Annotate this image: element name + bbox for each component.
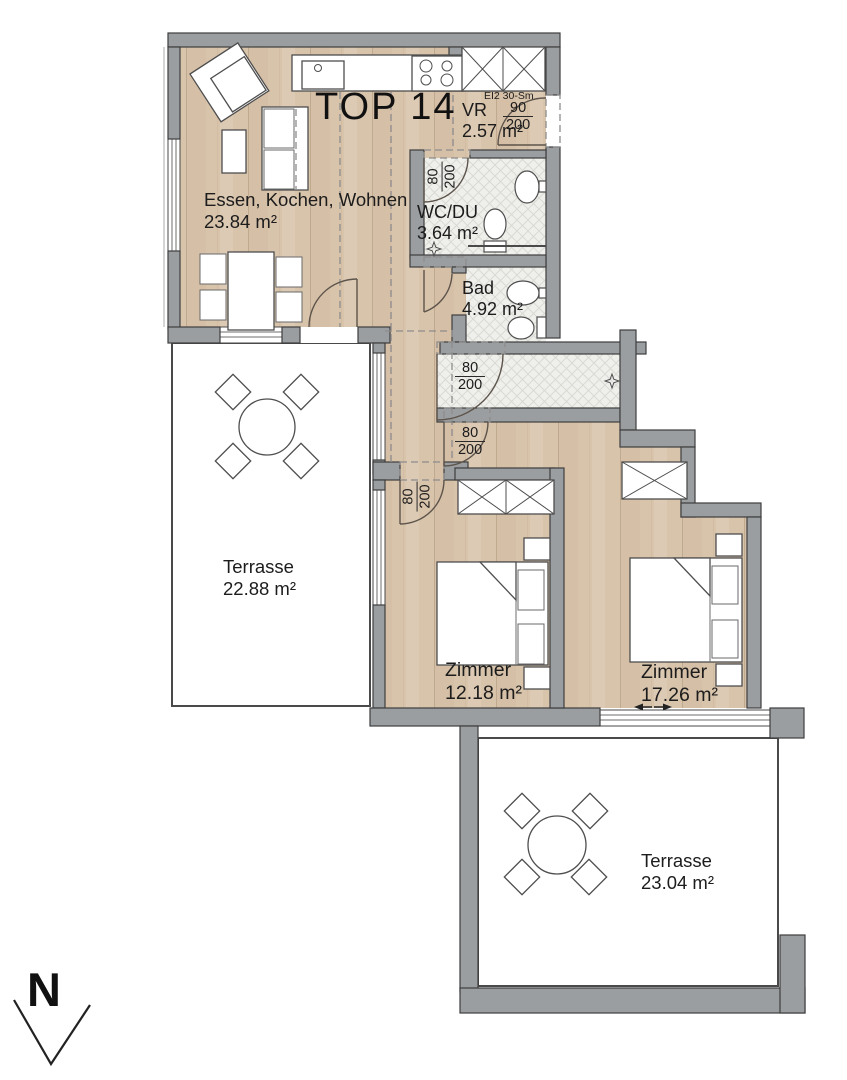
chair-icon — [283, 374, 318, 409]
door-size-label: 80 200 — [455, 360, 485, 393]
round-table-icon — [528, 816, 586, 874]
floor-plan: TOP 14 Essen, Kochen, Wohnen 23.84 m² VR… — [0, 0, 847, 1080]
north-label: N — [27, 962, 61, 1017]
kitchen-sink-icon — [302, 61, 344, 89]
toilet-icon — [484, 209, 506, 239]
room-label-bedroom-large: Zimmer 17.26 m² — [641, 661, 718, 707]
room-label-bedroom-small: Zimmer 12.18 m² — [445, 659, 522, 705]
chair-icon — [504, 859, 539, 894]
wardrobe-icon — [622, 462, 687, 499]
door-size-label: 80 200 — [401, 481, 434, 511]
door-size-label: 80 200 — [455, 425, 485, 458]
unit-title: TOP 14 — [315, 86, 457, 129]
room-label-living: Essen, Kochen, Wohnen 23.84 m² — [204, 189, 407, 232]
room-label-terrace-west: Terrasse 22.88 m² — [223, 556, 296, 599]
entry-door-size-label: 90 200 — [503, 100, 533, 133]
wardrobe-icon — [458, 480, 554, 514]
round-table-icon — [239, 399, 295, 455]
chair-icon — [572, 793, 607, 828]
toilet-icon — [508, 317, 534, 339]
chair-icon — [215, 443, 250, 478]
terrace-west-set — [215, 374, 318, 478]
room-label-wc: WC/DU 3.64 m² — [417, 202, 478, 243]
chair-icon — [283, 443, 318, 478]
sofa-icon — [262, 107, 308, 190]
floor-plan-drawing — [0, 0, 847, 1080]
coffee-table-icon — [222, 130, 246, 173]
room-label-terrace-south: Terrasse 23.04 m² — [641, 850, 714, 893]
chair-icon — [504, 793, 539, 828]
chair-icon — [215, 374, 250, 409]
door-size-label: 80 200 — [426, 161, 459, 191]
room-label-bath: Bad 4.92 m² — [462, 278, 523, 319]
washbasin-icon — [515, 171, 539, 203]
wardrobe-icon — [462, 47, 545, 91]
terrace-south-set — [504, 793, 607, 894]
